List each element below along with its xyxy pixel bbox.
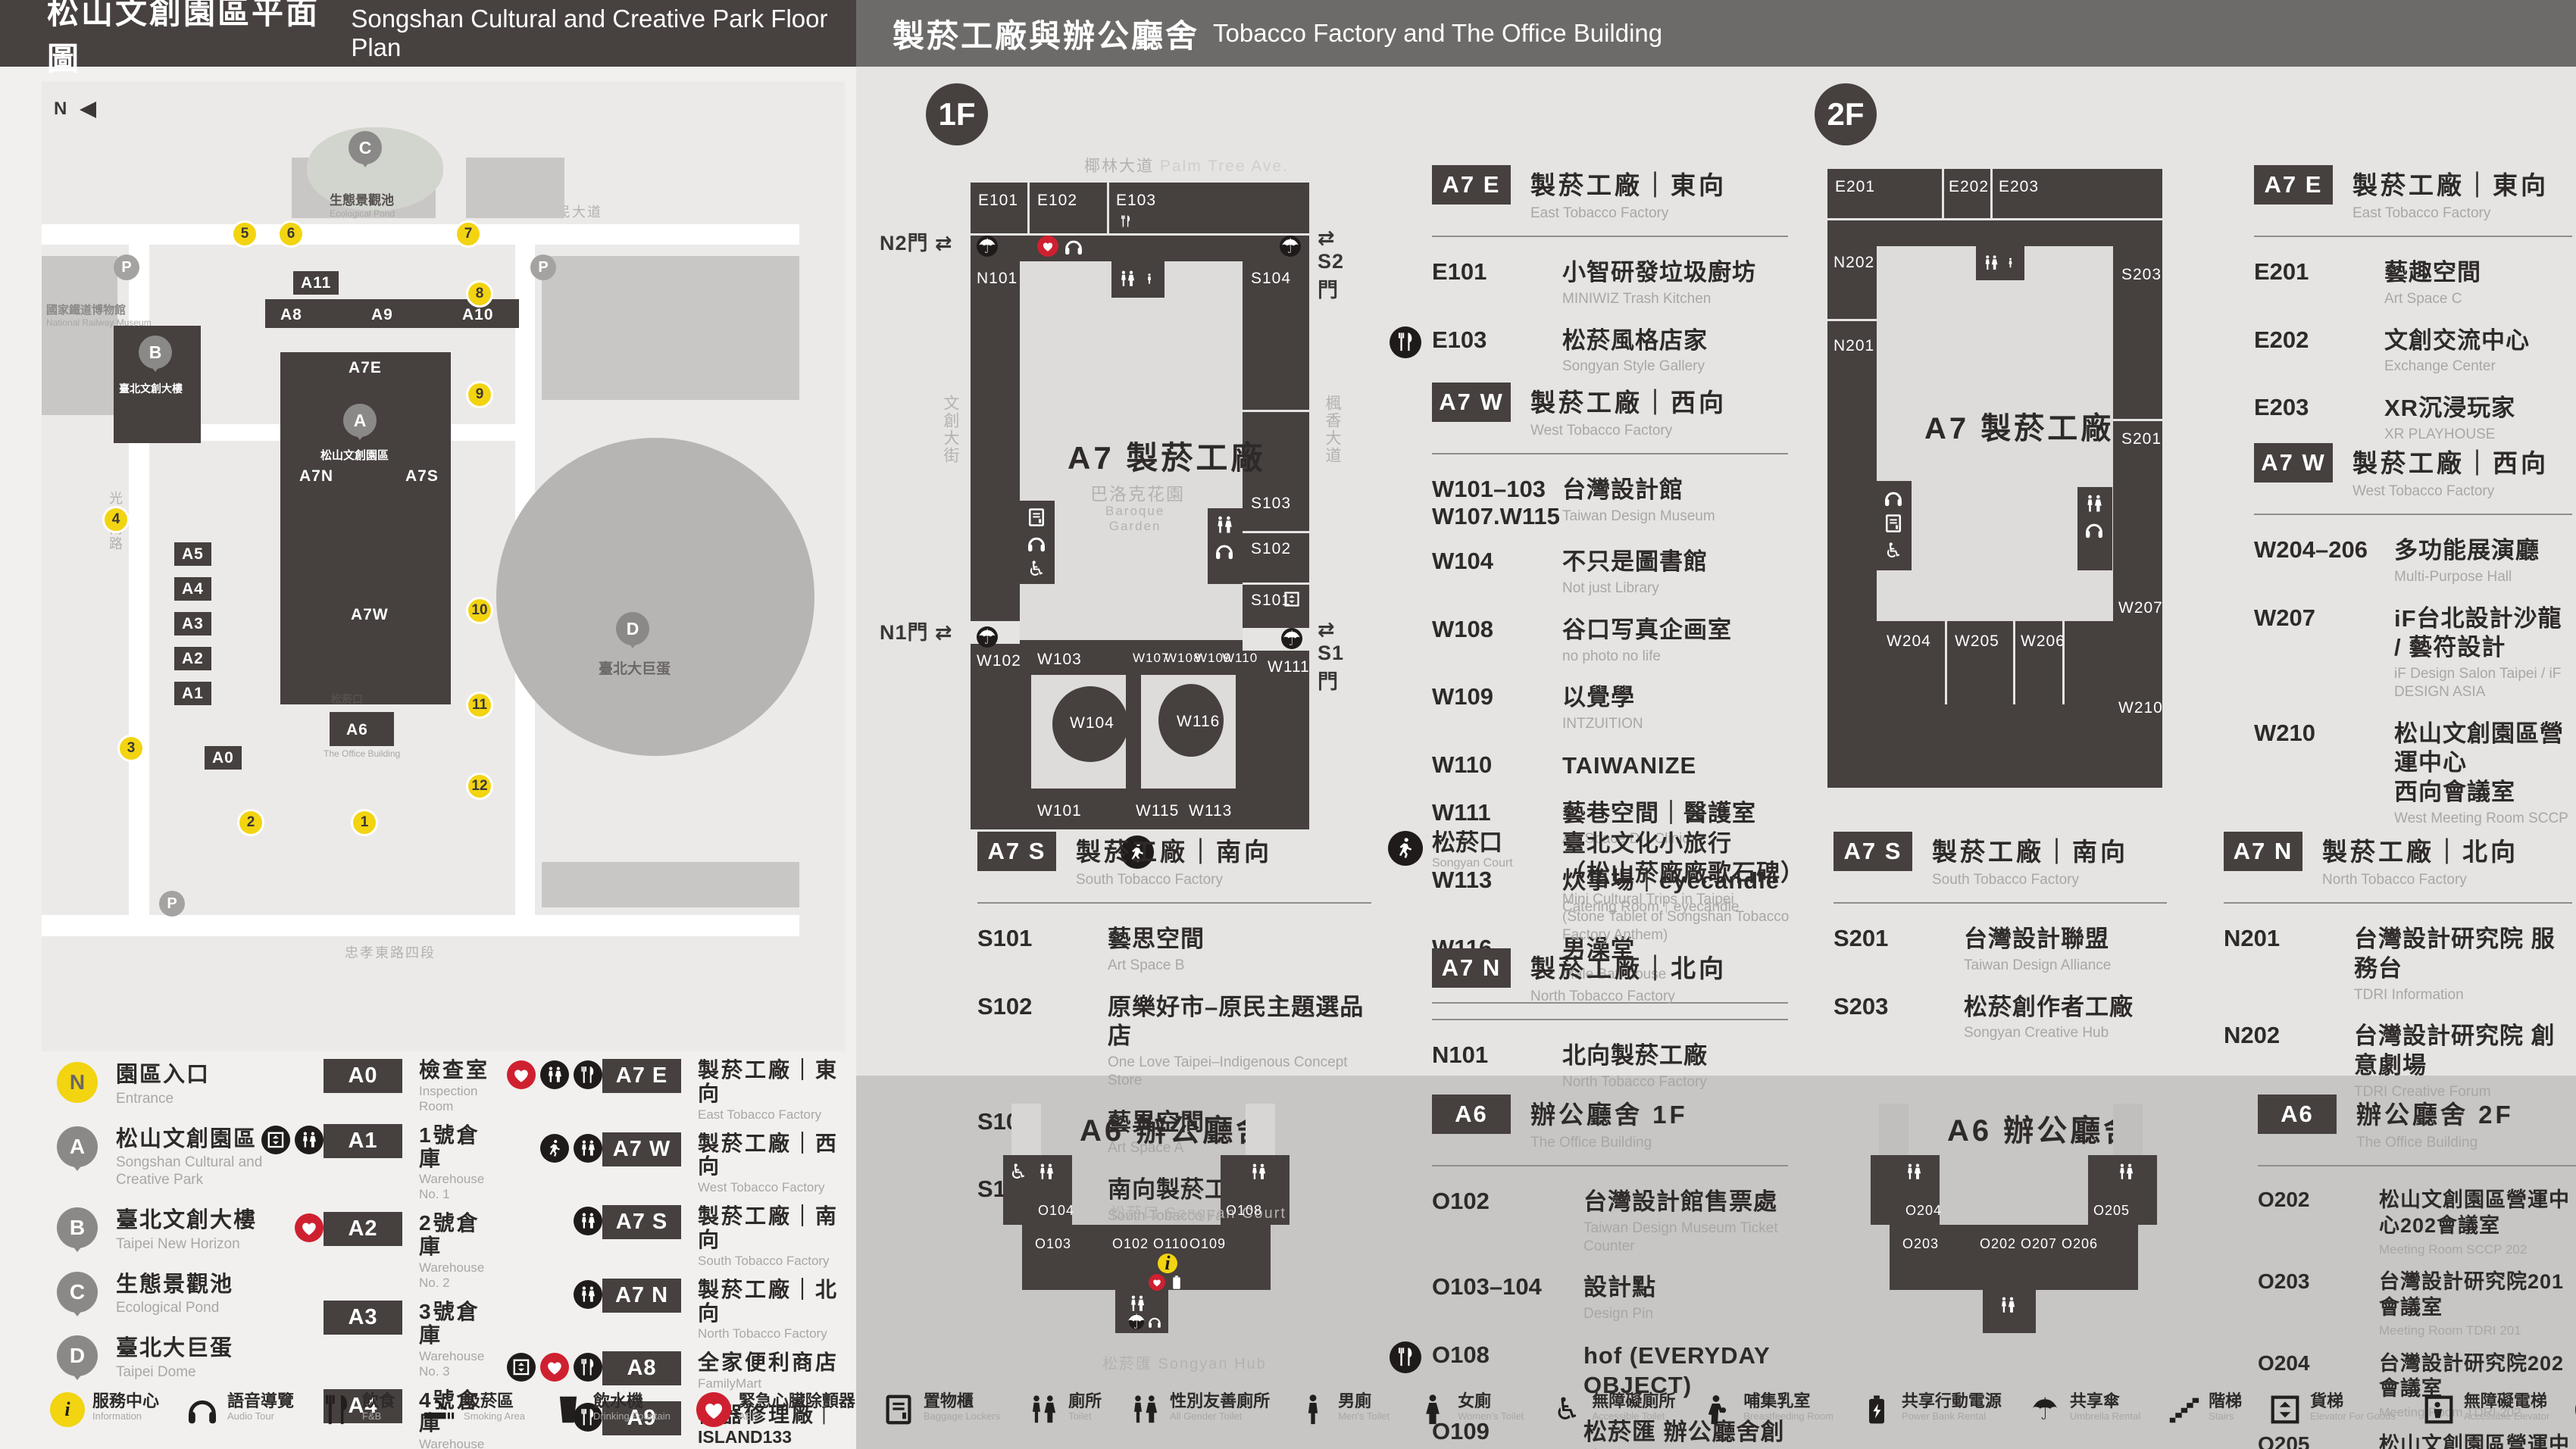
floor-2-map: E201 E202 E203 N202 N201 S203 S201 ♿ A7 …	[1827, 169, 2162, 790]
tnh-label: 臺北文創大樓	[119, 381, 183, 396]
minitrip-icon	[540, 1134, 569, 1163]
entrance-8: 8	[466, 280, 493, 308]
freight-icon	[507, 1353, 536, 1382]
legend-building-row: A8 全家便利商店FamilyMart	[496, 1351, 852, 1391]
badge-a7n: A7N	[292, 464, 341, 488]
room-s103: S103	[1251, 495, 1291, 513]
toilet-icon	[2116, 1160, 2136, 1183]
pin-c: C	[349, 131, 382, 164]
divider	[2013, 621, 2015, 704]
court-label: 松菸口	[331, 692, 363, 707]
divider	[1243, 531, 1309, 533]
road-bottom	[42, 915, 799, 936]
stair-strip	[2113, 1104, 2143, 1155]
room-n101: N101	[977, 270, 1018, 288]
audio-icon	[1063, 236, 1084, 257]
right-title-en: Tobacco Factory and The Office Building	[1213, 19, 1662, 48]
aed-icon	[540, 1353, 569, 1382]
room-list-row: W210 松山文創園區營運中心 西向會議室West Meeting Room S…	[2254, 720, 2572, 828]
room-e101: E101	[978, 192, 1018, 210]
entrance-2: 2	[237, 809, 264, 836]
room-name-en: MINIWIZ Trash Kitchen	[1562, 290, 1788, 308]
room-list-row: S102 原樂好市–原民主題選品店One Love Taipei–Indigen…	[977, 993, 1371, 1090]
room-w102: W102	[977, 652, 1021, 670]
room-n201: N201	[1834, 337, 1874, 355]
gate-n2: N2門 ⇄	[880, 226, 953, 256]
left-title-zh: 松山文創園區平面圖	[47, 0, 337, 80]
site-map: N 市民大道 光復南路 忠孝東路四段 國家鐵道博物館National Railw…	[42, 82, 845, 1051]
aed-icon	[1037, 236, 1058, 257]
room-list-row: S203 松菸創作者工廠Songyan Creative Hub	[1834, 993, 2167, 1043]
amenity-item: 女廁 Women's Toilet	[1415, 1392, 1524, 1427]
room-list-row: N201 台灣設計研究院 服務台TDRI Information	[2224, 925, 2572, 1004]
amenity-item: 性別友善廁所 All Gender Toilet	[1127, 1392, 1270, 1427]
street-maple: 楓香大道	[1321, 395, 1343, 464]
room-o109: O109	[1190, 1236, 1226, 1252]
railway-museum-label: 國家鐵道博物館National Railway Museum	[46, 301, 152, 328]
toilet-icon	[1998, 1295, 2018, 1315]
fnb-icon	[1119, 213, 1133, 230]
room-w207: W207	[2118, 599, 2163, 617]
room-list-row: E203 XR沉浸玩家XR PLAYHOUSE	[2254, 394, 2572, 444]
umbrella-icon: ☂	[2027, 1392, 2062, 1427]
accesselev-icon	[2421, 1392, 2456, 1427]
water-icon	[551, 1392, 586, 1427]
room-w104: W104	[1070, 714, 1114, 732]
room-o108: O108	[1226, 1203, 1262, 1219]
room-w113: W113	[1189, 802, 1232, 820]
locker-icon	[1883, 513, 1904, 534]
room-w206: W206	[2021, 632, 2065, 651]
room-name-zh: 松菸風格店家	[1562, 326, 1788, 356]
toilet-icon	[295, 1126, 324, 1154]
office-map-title: A6 辦公廳舍	[1080, 1106, 1269, 1150]
section-1f-a7e: A7 E 製菸工廠｜東向East Tobacco Factory E101 小智…	[1432, 165, 1788, 394]
audio-icon	[1883, 487, 1904, 508]
badge-a7s: A7S	[398, 464, 446, 488]
divider	[1942, 169, 1944, 218]
amenity-item: 飲水機 Drinking Fountain	[551, 1392, 671, 1427]
wing-left-lower	[971, 644, 1020, 829]
room-list-row: N101 北向製菸工廠North Tobacco Factory	[1432, 1041, 1788, 1091]
office-en-label: The Office Building	[324, 748, 400, 759]
stair-strip	[1246, 1104, 1275, 1155]
office-map-title: A6 辦公廳舍	[1947, 1106, 2137, 1150]
minitrip-icon	[1388, 831, 1423, 866]
room-list-row: S101 藝思空間Art Space B	[977, 925, 1371, 975]
accessible-icon: ♿	[1549, 1392, 1584, 1427]
aed-icon	[295, 1213, 324, 1242]
room-w210: W210	[2118, 699, 2163, 717]
pin-d: D	[616, 612, 649, 645]
room-s102: S102	[1251, 540, 1291, 558]
amenity-legend: i 服務中心 Information 語音導覽 Audio Tour 飲食 F&…	[50, 1392, 2543, 1434]
amenity-item: 共享行動電源 Power Bank Rental	[1859, 1392, 2002, 1427]
room-w204: W204	[1887, 632, 1931, 651]
floor-1-map: 椰林大道 Palm Tree Ave. 文創大街 楓香大道 ♿ A7 製菸工廠 …	[971, 183, 1309, 829]
aed-icon	[696, 1392, 731, 1427]
room-code: E101	[1432, 258, 1562, 308]
divider	[1243, 582, 1309, 585]
legend-pin-icon: N	[57, 1062, 98, 1103]
powerbank-icon	[1859, 1392, 1894, 1427]
pin-b: B	[139, 336, 172, 369]
locker-icon	[1026, 507, 1047, 528]
room-w115: W115	[1136, 802, 1179, 820]
amenity-item: i 服務中心 Information	[50, 1392, 159, 1427]
divider	[971, 233, 1309, 236]
accessible-icon: ♿	[1026, 558, 1047, 579]
floor-1-badge: 1F	[926, 83, 988, 145]
legend-building-row: A3 3號倉庫Warehouse No. 3	[193, 1301, 496, 1379]
room-list-row: W110 TAIWANIZE	[1432, 751, 1788, 781]
room-e203: E203	[1999, 178, 2039, 196]
fnb-icon	[1390, 1341, 1421, 1373]
umbrella-icon: ☂	[977, 236, 998, 257]
toilet-icon	[574, 1280, 602, 1309]
legend-building-row: A7 N 製菸工廠｜北向North Tobacco Factory	[496, 1279, 852, 1342]
office-bar	[1890, 1225, 2138, 1290]
entrance-3: 3	[117, 735, 145, 762]
entrance-6: 6	[277, 220, 305, 248]
stair-strip	[1879, 1104, 1909, 1155]
legend-building-row: A7 W 製菸工廠｜西向West Tobacco Factory	[496, 1132, 852, 1196]
legend-buildings-col1: A0 檢查室Inspection Room A1 1號倉庫Warehouse N…	[193, 1059, 496, 1449]
wing-right-lower	[1243, 651, 1309, 829]
gate-s1: ⇄ S1門	[1318, 618, 1344, 695]
dome-mall-block	[542, 256, 799, 400]
room-o103: O103	[1035, 1236, 1071, 1252]
room-list-row: E101 小智研發垃圾廚坊MINIWIZ Trash Kitchen	[1432, 258, 1788, 308]
wing-left	[1827, 246, 1877, 788]
audio-icon	[185, 1392, 220, 1427]
freight-elevator-icon	[1283, 590, 1301, 608]
room-list-row: W207 iF台北設計沙龍 / 藝符設計iF Design Salon Taip…	[2254, 604, 2572, 701]
section-1f-a7n: A7 N 製菸工廠｜北向North Tobacco Factory N101 北…	[1432, 948, 1788, 1110]
freight-icon	[261, 1126, 290, 1154]
divider	[2113, 419, 2162, 421]
badge-a3: A3	[174, 612, 211, 635]
factory-center-label: A7 製菸工廠	[1068, 433, 1265, 479]
north-arrow-icon: N	[54, 98, 96, 120]
fnb-icon	[1390, 326, 1421, 358]
men-icon	[1296, 1392, 1330, 1427]
toilet-icon	[574, 1134, 602, 1163]
badge-a7w: A7W	[343, 603, 396, 626]
section-2f-a7e: A7 E 製菸工廠｜東向East Tobacco Factory E201 藝趣…	[2254, 165, 2572, 462]
office-bar	[1022, 1225, 1271, 1290]
section-2f-a7s: A7 S 製菸工廠｜南向South Tobacco Factory S201 台…	[1834, 832, 2167, 1060]
room-e202: E202	[1949, 178, 1989, 196]
entrance-11: 11	[466, 692, 493, 719]
badge-a9: A9	[364, 303, 401, 326]
room-list-row: E202 文創交流中心Exchange Center	[2254, 326, 2572, 376]
umbrella-icon: ☂	[1280, 236, 1301, 257]
building-code: A0	[324, 1059, 402, 1093]
divider	[1990, 169, 1993, 218]
building-code: A2	[324, 1212, 402, 1246]
legend-buildings-col2: A7 E 製菸工廠｜東向East Tobacco Factory A7 W 製菸…	[496, 1059, 852, 1449]
right-header: 製菸工廠與辦公廳舍 Tobacco Factory and The Office…	[856, 0, 2576, 67]
smoking-icon	[421, 1392, 456, 1427]
toilet-icon	[1118, 267, 1137, 290]
pin-a: A	[343, 404, 377, 437]
legend-pin-icon: D	[57, 1335, 98, 1376]
divider	[1107, 183, 1109, 233]
park-label: 松山文創園區	[320, 447, 389, 463]
amenity-item: 飲食 F&B	[320, 1392, 395, 1427]
info-icon: i	[50, 1392, 85, 1427]
building-code: A3	[324, 1301, 402, 1335]
divider	[1027, 183, 1030, 233]
amenity-item: 置物櫃 Baggage Lockers	[881, 1392, 1000, 1427]
room-o206: O206	[2062, 1236, 2098, 1252]
street-cultural: 文創大街	[939, 395, 961, 464]
amenity-item: 語音導覽 Audio Tour	[185, 1392, 294, 1427]
legend-building-row: A0 檢查室Inspection Room	[193, 1059, 496, 1114]
amenity-item: ♿ 無障礙廁所 Accessible Toilet	[1549, 1392, 1675, 1427]
amenity-item: ☂ 共享傘 Umbrella Rental	[2027, 1392, 2140, 1427]
entrance-12: 12	[466, 773, 493, 800]
room-list-row: O103–104 設計點Design Pin	[1432, 1273, 1788, 1323]
fnb-icon	[574, 1353, 602, 1382]
dome-label: 臺北大巨蛋	[599, 657, 671, 678]
building-code: A8	[602, 1351, 681, 1385]
room-list-row: O205 松山文創園區營運中心201會議室Meeting Room SCCP 2…	[2258, 1432, 2576, 1449]
amenity-item: 緊急心臟除顫器 AED	[696, 1392, 855, 1427]
entrance-10: 10	[466, 597, 493, 624]
building-code: A1	[324, 1124, 402, 1158]
wing-left-upper	[971, 261, 1020, 621]
toilet-icon	[1214, 514, 1235, 536]
umbrella-icon: ☂	[977, 626, 998, 648]
amenity-item: 男廁 Men's Toilet	[1296, 1392, 1390, 1427]
fnb-icon	[574, 1060, 602, 1089]
room-code: E103	[1432, 326, 1562, 376]
legend-pin-icon: B	[57, 1207, 98, 1248]
building-code: A7 E	[602, 1059, 681, 1093]
left-header: 松山文創園區平面圖 Songshan Cultural and Creative…	[0, 0, 856, 67]
gate-n1: N1門 ⇄	[880, 616, 953, 645]
north-block-2	[466, 158, 564, 218]
divider	[1243, 410, 1309, 412]
legend-building-row: A1 1號倉庫Warehouse No. 1	[193, 1124, 496, 1203]
stairs-icon	[2166, 1392, 2201, 1427]
room-w103: W103	[1037, 651, 1082, 669]
freight-icon	[2268, 1392, 2302, 1427]
garden-label-zh: 巴洛克花園	[1090, 479, 1185, 505]
room-w110: W110	[1222, 651, 1258, 666]
room-o203: O203	[1902, 1236, 1939, 1252]
legend-building-row: A2 2號倉庫Warehouse No. 2	[193, 1212, 496, 1291]
badge-a0: A0	[205, 746, 242, 770]
audio-icon	[1147, 1314, 1162, 1329]
legend-building-row: A7 E 製菸工廠｜東向East Tobacco Factory	[496, 1059, 852, 1123]
aed-icon	[1149, 1274, 1165, 1291]
women-icon	[1415, 1392, 1450, 1427]
room-o204: O204	[1905, 1203, 1942, 1219]
parking-icon: P	[530, 255, 556, 280]
room-e201: E201	[1835, 178, 1875, 196]
room-name-en: Songyan Style Gallery	[1562, 358, 1788, 376]
room-list-row: O102 台灣設計館售票處Taiwan Design Museum Ticket…	[1432, 1188, 1788, 1255]
amenity-item: 階梯 Stairs	[2166, 1392, 2242, 1427]
divider	[1827, 218, 2162, 220]
toilet-icon	[2084, 493, 2105, 514]
parking-icon: P	[159, 891, 185, 917]
audio-icon	[1214, 540, 1235, 561]
stair-strip	[1011, 1104, 1041, 1155]
section-2f-a7n: A7 N 製菸工廠｜北向North Tobacco Factory N201 台…	[2224, 832, 2572, 1120]
building-code: A7 N	[602, 1279, 681, 1313]
hub-map-label: 松菸匯 Songyan Hub	[1102, 1351, 1267, 1373]
room-s203: S203	[2121, 266, 2162, 284]
legend-pin-icon: A	[57, 1126, 98, 1167]
men-toilet-icon	[2005, 252, 2016, 273]
office-2f-map: A6 辦公廳舍 O204 O205 O203 O202 O207 O206	[1807, 1091, 2277, 1379]
taipei-dome-shape	[496, 438, 814, 756]
road-top	[42, 224, 799, 245]
section-2f-a7w: A7 W 製菸工廠｜西向West Tobacco Factory W204–20…	[2254, 443, 2572, 846]
room-o110: O110	[1153, 1236, 1189, 1252]
building-code: A7 W	[602, 1132, 681, 1166]
men-toilet-icon	[1143, 267, 1155, 290]
room-list-row: O202 松山文創園區營運中心202會議室Meeting Room SCCP 2…	[2258, 1188, 2576, 1257]
amenity-item: 吸菸區 Smoking Area	[421, 1392, 525, 1427]
legend-pin-icon: C	[57, 1272, 98, 1313]
street-palm: 椰林大道 Palm Tree Ave.	[1084, 154, 1289, 176]
room-list-row: N202 台灣設計研究院 創意劇場TDRI Creative Forum	[2224, 1022, 2572, 1101]
street-zhongxiao: 忠孝東路四段	[345, 942, 436, 962]
room-e102: E102	[1037, 192, 1077, 210]
wing-top	[1827, 169, 2162, 246]
legend-building-row: A7 S 製菸工廠｜南向South Tobacco Factory	[496, 1205, 852, 1269]
badge-a7e: A7E	[341, 356, 389, 379]
room-w111: W111	[1268, 658, 1310, 676]
room-list-row: W108 谷口写真企画室no photo no life	[1432, 616, 1788, 666]
room-list-row: W204–206 多功能展演廳Multi-Purpose Hall	[2254, 536, 2572, 586]
entrance-7: 7	[455, 220, 482, 248]
entrance-9: 9	[466, 381, 493, 408]
gate-s2: ⇄ S2門	[1318, 226, 1344, 303]
factory-center-label: A7 製菸工廠	[1924, 404, 2114, 448]
poster: 松山文創園區平面圖 Songshan Cultural and Creative…	[0, 0, 2576, 1449]
allgender-icon	[1127, 1392, 1162, 1427]
room-w205: W205	[1955, 632, 1999, 651]
breastfeeding-icon	[1701, 1392, 1736, 1427]
accessible-icon: ♿	[1009, 1163, 1027, 1181]
south-block	[542, 862, 799, 907]
entrance-1: 1	[351, 809, 378, 836]
fnb-icon	[320, 1392, 355, 1427]
pond-label: 生態景觀池Ecological Pond	[330, 189, 395, 219]
room-o102: O102	[1112, 1236, 1149, 1252]
audio-icon	[1026, 532, 1047, 554]
amenity-item: 哺集乳室 Breastfeeding Room	[1701, 1392, 1834, 1427]
powerbank-icon	[1168, 1274, 1185, 1291]
toilet-icon	[574, 1207, 602, 1235]
divider	[1945, 621, 1947, 704]
toilet-icon	[1036, 1160, 1056, 1183]
amenity-item: 廁所 Toilet	[1026, 1392, 1102, 1427]
toilet-icon	[1904, 1160, 1924, 1183]
toilet-icon	[1249, 1160, 1268, 1183]
room-o104: O104	[1038, 1203, 1074, 1219]
room-w101: W101	[1037, 802, 1082, 820]
audio-icon	[2084, 519, 2105, 540]
accessible-icon: ♿	[1883, 540, 1904, 561]
umbrella-icon: ☂	[1281, 628, 1302, 649]
info-icon: i	[1158, 1254, 1177, 1273]
aed-icon	[507, 1060, 536, 1089]
right-title-zh: 製菸工廠與辦公廳舍	[893, 11, 1199, 57]
room-list-row: O203 台灣設計研究院201會議室Meeting Room TDRI 201	[2258, 1269, 2576, 1339]
section-badge: A7 E	[1432, 165, 1511, 205]
room-o205: O205	[2093, 1203, 2130, 1219]
garden-label-en: Baroque Garden	[1105, 504, 1165, 534]
amenity-item: 貨梯 Elevator For Goods	[2268, 1392, 2396, 1427]
badge-a4: A4	[174, 577, 211, 601]
room-list-row: E201 藝趣空間Art Space C	[2254, 258, 2572, 308]
locker-icon	[881, 1392, 916, 1427]
room-w116: W116	[1177, 713, 1220, 731]
room-s201: S201	[2121, 430, 2162, 448]
left-title-en: Songshan Cultural and Creative Park Floo…	[351, 5, 856, 62]
office-1f-map: A6 辦公廳舍 ♿ 松菸口 Songyan Court O104 O108 O1…	[939, 1091, 1409, 1379]
amenity-item: 無障礙電梯 Accessible Elevator	[2421, 1392, 2549, 1427]
building-code: A7 S	[602, 1205, 681, 1239]
toilet-icon	[1026, 1392, 1061, 1427]
room-list-row: W104 不只是圖書館Not just Library	[1432, 548, 1788, 598]
divider	[1827, 319, 1877, 321]
badge-a6: A6	[339, 718, 376, 742]
room-o202: O202	[1980, 1236, 2016, 1252]
entrance-4: 4	[102, 506, 130, 533]
room-list-row: W101–103W107.W115 台灣設計館Taiwan Design Mus…	[1432, 476, 1788, 529]
floor-2-badge: 2F	[1815, 83, 1877, 145]
badge-a5: A5	[174, 542, 211, 566]
toilet-icon	[1982, 252, 2000, 273]
section-1f-court: 松菸口 Songyan Court 臺北文化小旅行 （松山菸廠廠歌石碑） Min…	[1432, 829, 1796, 945]
umbrella-icon: ☂	[1129, 1314, 1144, 1329]
toilet-icon	[540, 1060, 569, 1089]
badge-a1: A1	[174, 682, 211, 705]
room-list-row: S201 台灣設計聯盟Taiwan Design Alliance	[1834, 925, 2167, 975]
room-list-row: W109 以覺學INTZUITION	[1432, 683, 1788, 733]
room-name-zh: 小智研發垃圾廚坊	[1562, 258, 1788, 288]
parking-icon: P	[114, 255, 139, 280]
room-list-row: E103 松菸風格店家Songyan Style Gallery	[1432, 326, 1788, 376]
railway-museum-block	[42, 256, 117, 415]
badge-a2: A2	[174, 647, 211, 670]
room-s104: S104	[1251, 270, 1291, 288]
room-o207: O207	[2021, 1236, 2057, 1252]
room-e103: E103	[1116, 192, 1156, 210]
entrance-5: 5	[231, 220, 258, 248]
badge-a8: A8	[273, 303, 310, 326]
badge-a11: A11	[293, 271, 339, 295]
room-n202: N202	[1834, 254, 1874, 272]
